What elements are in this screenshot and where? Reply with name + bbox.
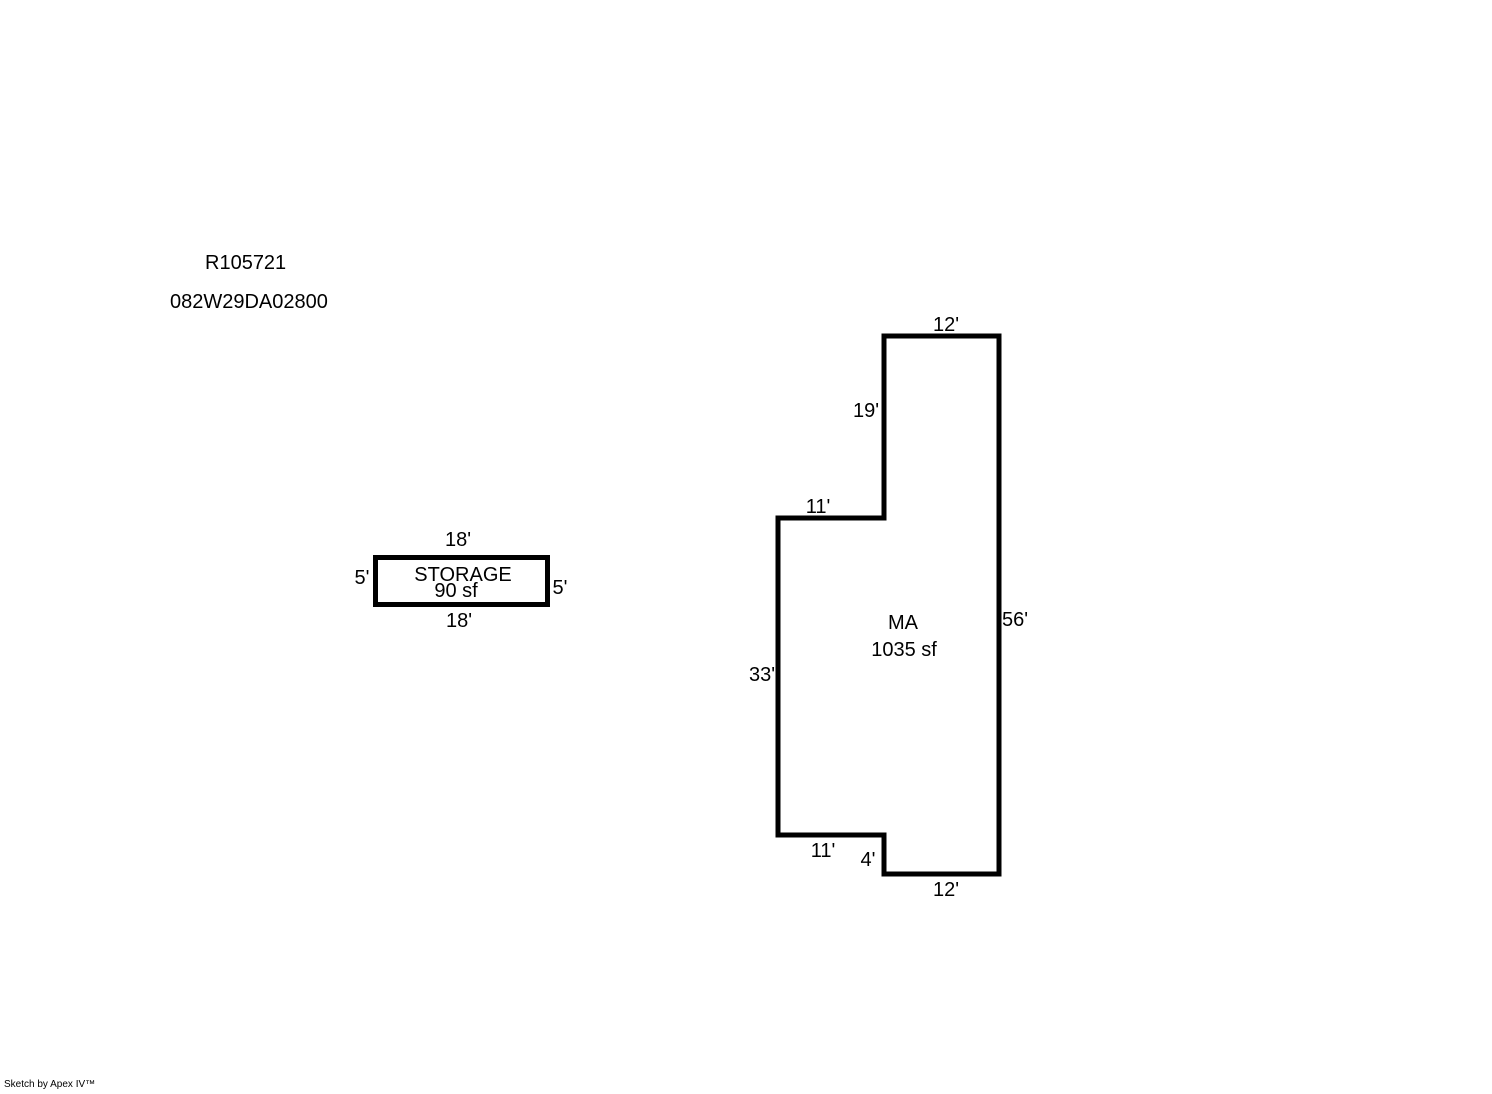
- storage-area: 90 sf: [434, 581, 477, 601]
- apex-credit: Sketch by Apex IV™: [4, 1080, 95, 1090]
- ma-dim-left: 33': [749, 665, 775, 685]
- storage-dim-right: 5': [553, 578, 568, 598]
- ma-dim-step-upper: 11': [806, 497, 831, 517]
- storage-dim-bottom: 18': [446, 611, 472, 631]
- sketch-canvas: R105721 082W29DA02800 18' 5' 5' 18' STOR…: [0, 0, 1492, 1094]
- main-area-outline: [0, 0, 1492, 1094]
- main-area-polygon: [778, 336, 999, 874]
- storage-dim-left: 5': [355, 568, 370, 588]
- ma-dim-notch: 4': [861, 850, 876, 870]
- ma-dim-bottom: 12': [933, 880, 959, 900]
- ma-dim-step-lower: 11': [811, 841, 836, 861]
- ma-dim-upper-left: 19': [853, 401, 879, 421]
- storage-dim-top: 18': [445, 530, 471, 550]
- ma-dim-right: 56': [1002, 610, 1028, 630]
- ma-dim-top: 12': [933, 315, 959, 335]
- ma-label: MA: [888, 613, 918, 633]
- ma-area: 1035 sf: [871, 640, 937, 660]
